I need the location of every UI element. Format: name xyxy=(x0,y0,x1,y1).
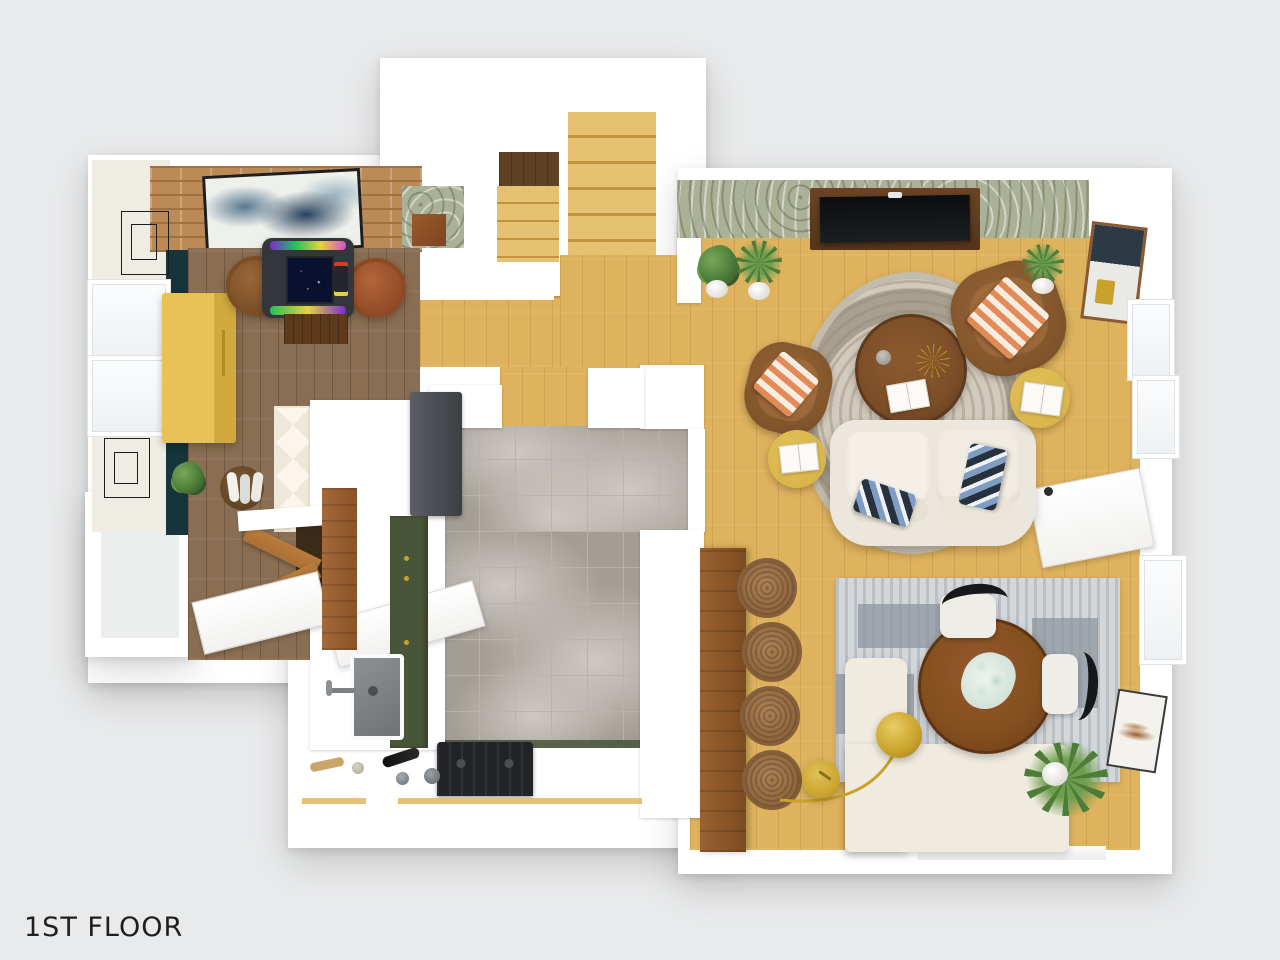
stair-landing xyxy=(499,152,559,186)
floor-plan-scene: 1ST FLOOR xyxy=(0,0,1280,960)
fern-plant xyxy=(736,240,782,286)
window-right-3 xyxy=(1140,556,1186,664)
gold-side-table xyxy=(802,760,840,798)
kitchen-sink xyxy=(350,654,404,740)
gas-range xyxy=(437,742,533,796)
faucet-handle-icon xyxy=(326,680,332,696)
arcade-base xyxy=(284,314,348,344)
sink-drain-icon xyxy=(368,686,378,696)
floor-label: 1ST FLOOR xyxy=(24,912,183,943)
plant-pot xyxy=(706,280,728,298)
kitchen-floor-tile xyxy=(443,426,690,532)
plant-pot xyxy=(1032,278,1054,294)
palm-pot xyxy=(1042,762,1068,786)
jar-icon xyxy=(352,762,364,774)
basket-blanket-roll xyxy=(240,474,250,504)
kitchen-doorway-floor xyxy=(500,367,588,429)
door-handle-icon xyxy=(1044,487,1053,496)
plant-pot xyxy=(748,282,770,300)
table-vase xyxy=(876,350,891,365)
tv xyxy=(820,195,971,244)
window-left-2 xyxy=(88,356,170,436)
jar-icon xyxy=(396,772,409,785)
living-wall-art-accent xyxy=(1095,279,1116,305)
window-right-2 xyxy=(1133,376,1179,458)
credenza-handle xyxy=(222,330,225,376)
gallery-frame-icon xyxy=(131,224,157,260)
window-left-1 xyxy=(88,280,170,360)
window-right-1 xyxy=(1128,300,1174,380)
jar-icon xyxy=(424,768,440,784)
hall-kitchen-corner-wall xyxy=(640,365,704,429)
wood-countertop xyxy=(322,488,357,650)
open-book-left xyxy=(779,442,820,474)
cabinet-knob xyxy=(404,556,409,561)
open-book-right xyxy=(1020,381,1064,416)
bar-stool-2 xyxy=(742,622,802,682)
game-stool-right xyxy=(346,258,406,318)
kitchen-window-sill xyxy=(398,798,642,804)
kitchen-north-wall-right xyxy=(588,368,644,428)
tv-mount xyxy=(888,192,902,198)
arcade-screen xyxy=(286,256,334,304)
refrigerator xyxy=(410,392,462,516)
kitchen-floor-tile-lower xyxy=(443,532,645,748)
arcade-marquee-top xyxy=(270,241,346,250)
kitchen-east-wall xyxy=(688,429,705,532)
stair-flight-lower xyxy=(497,186,559,262)
kitchen-window-sill xyxy=(302,798,366,804)
arc-lamp-shade xyxy=(876,712,922,758)
gallery-frame-icon xyxy=(114,452,138,484)
powder-room-vanity xyxy=(412,214,446,246)
faucet-icon xyxy=(330,688,356,693)
cabinet-knob xyxy=(404,640,409,645)
bar-stool-1 xyxy=(737,558,797,618)
cabinet-knob xyxy=(404,576,409,581)
kitchen-peninsula-wall xyxy=(640,530,704,818)
starburst-decor xyxy=(916,344,950,378)
game-room-plant xyxy=(172,462,204,494)
arcade-control-panel xyxy=(334,262,348,296)
